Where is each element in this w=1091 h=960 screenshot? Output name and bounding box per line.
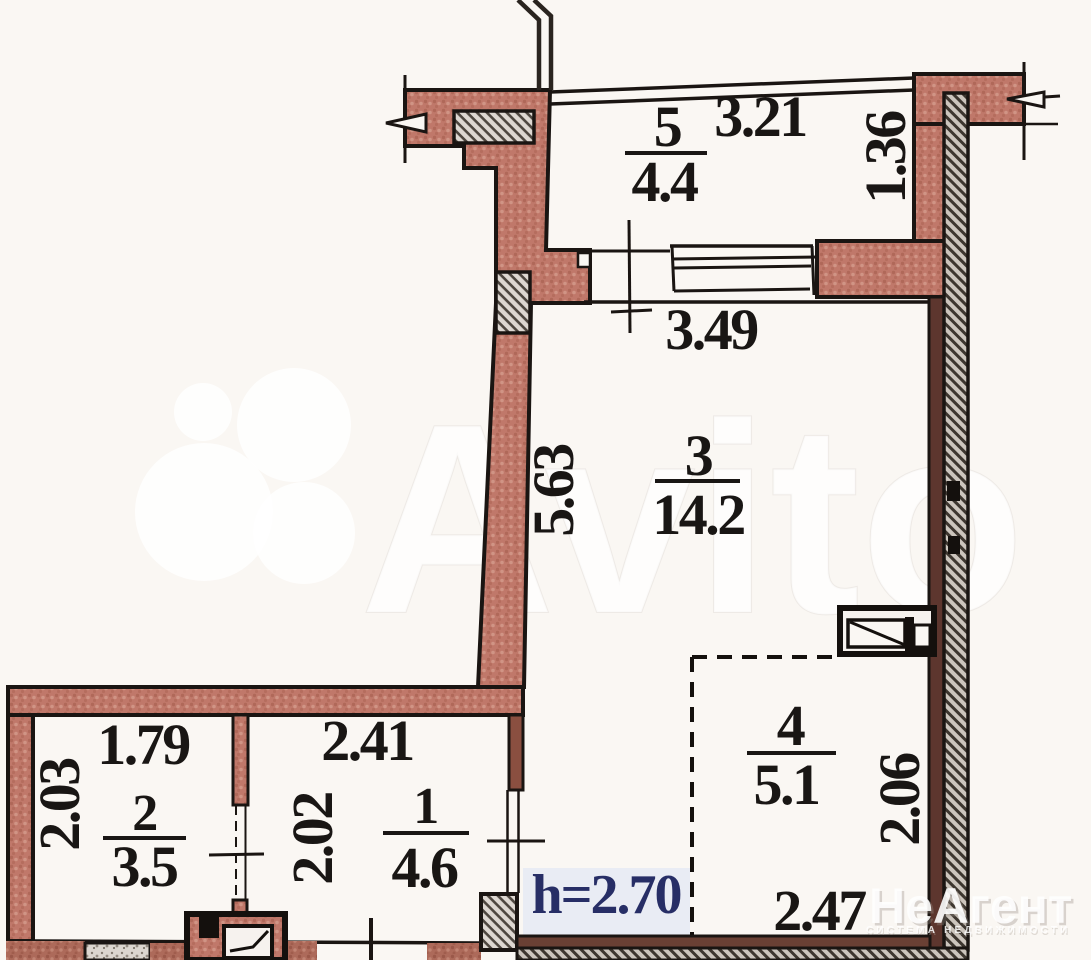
- svg-text:h=2.70: h=2.70: [531, 864, 680, 926]
- svg-text:2.47: 2.47: [773, 878, 866, 943]
- svg-text:2.41: 2.41: [321, 708, 413, 773]
- svg-text:3: 3: [685, 423, 713, 488]
- svg-text:14.2: 14.2: [652, 482, 744, 547]
- svg-text:3.49: 3.49: [665, 297, 757, 362]
- svg-text:3.5: 3.5: [112, 834, 178, 899]
- svg-text:5.63: 5.63: [521, 444, 586, 537]
- svg-text:1.79: 1.79: [97, 712, 189, 777]
- svg-text:1.36: 1.36: [853, 111, 918, 204]
- svg-text:2.02: 2.02: [280, 793, 345, 885]
- svg-text:2.06: 2.06: [867, 753, 932, 846]
- svg-text:СИСТЕМА НЕДВИЖИМОСТИ: СИСТЕМА НЕДВИЖИМОСТИ: [866, 925, 1071, 936]
- svg-text:3.21: 3.21: [714, 84, 806, 149]
- svg-text:5.1: 5.1: [754, 752, 819, 817]
- svg-text:2.03: 2.03: [27, 758, 92, 851]
- svg-text:4.6: 4.6: [392, 835, 459, 900]
- svg-text:4.4: 4.4: [632, 149, 699, 214]
- svg-text:4: 4: [777, 693, 805, 758]
- svg-text:1: 1: [413, 778, 437, 835]
